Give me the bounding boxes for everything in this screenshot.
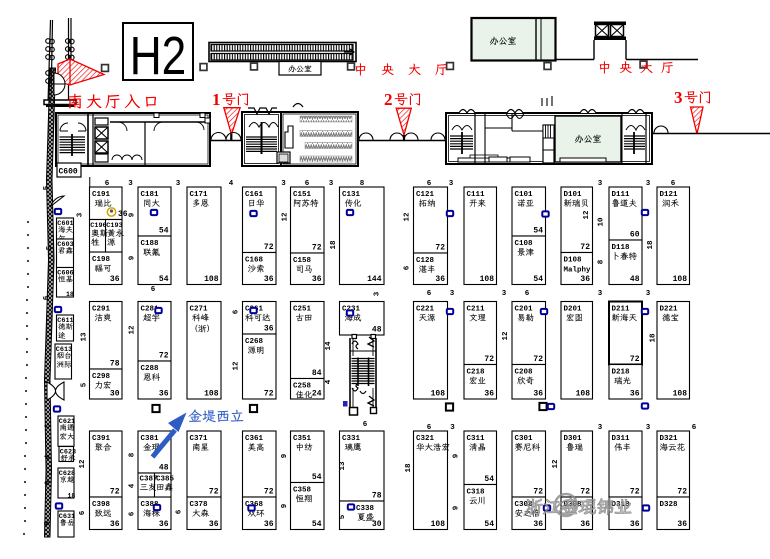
svg-text:科可达: 科可达 xyxy=(245,313,271,324)
svg-text:54: 54 xyxy=(159,227,169,236)
svg-text:84: 84 xyxy=(312,369,322,378)
svg-text:72: 72 xyxy=(630,355,640,364)
svg-text:14: 14 xyxy=(325,341,333,351)
svg-text:54: 54 xyxy=(484,475,494,484)
svg-text:36: 36 xyxy=(312,275,322,284)
svg-text:108: 108 xyxy=(431,520,446,529)
svg-text:C600: C600 xyxy=(59,168,78,177)
svg-text:宏图: 宏图 xyxy=(566,313,583,324)
svg-text:60: 60 xyxy=(630,231,640,240)
svg-text:源明: 源明 xyxy=(248,345,265,356)
svg-text:108: 108 xyxy=(431,390,446,399)
svg-text:72: 72 xyxy=(533,355,543,364)
svg-text:6: 6 xyxy=(233,309,241,314)
svg-text:3: 3 xyxy=(281,180,286,188)
svg-text:3: 3 xyxy=(329,180,334,188)
svg-text:72: 72 xyxy=(159,352,169,361)
svg-text:36: 36 xyxy=(159,520,169,529)
svg-text:9: 9 xyxy=(281,503,289,508)
svg-text:108: 108 xyxy=(673,275,688,284)
svg-text:日华: 日华 xyxy=(248,198,266,209)
svg-text:12: 12 xyxy=(552,459,560,469)
svg-text:78: 78 xyxy=(372,492,382,501)
svg-text:72: 72 xyxy=(264,488,274,497)
svg-text:36: 36 xyxy=(264,275,274,284)
svg-text:司马: 司马 xyxy=(296,264,313,275)
svg-text:号门: 号门 xyxy=(684,88,712,106)
svg-text:途: 途 xyxy=(58,331,66,341)
svg-text:德宝: 德宝 xyxy=(662,313,679,324)
svg-text:3: 3 xyxy=(176,180,181,188)
svg-text:1: 1 xyxy=(212,90,221,109)
svg-text:6: 6 xyxy=(45,480,53,485)
svg-text:72: 72 xyxy=(209,488,219,497)
svg-text:恒基: 恒基 xyxy=(58,275,73,285)
svg-text:恒翔: 恒翔 xyxy=(296,494,313,505)
svg-text:72: 72 xyxy=(677,488,687,497)
svg-text:18: 18 xyxy=(66,291,74,298)
svg-text:5: 5 xyxy=(339,514,347,519)
svg-text:佳化: 佳化 xyxy=(296,390,314,401)
svg-text:36: 36 xyxy=(110,520,120,529)
svg-text:南星: 南星 xyxy=(192,442,210,453)
svg-text:南大厅入口: 南大厅入口 xyxy=(67,90,162,112)
svg-text:72: 72 xyxy=(312,244,322,253)
svg-text:36: 36 xyxy=(484,390,494,399)
svg-text:源: 源 xyxy=(107,237,116,248)
svg-text:108: 108 xyxy=(576,390,591,399)
svg-text:3: 3 xyxy=(646,424,651,432)
svg-text:36: 36 xyxy=(677,520,687,529)
svg-text:文理: 文理 xyxy=(469,313,487,324)
svg-text:3: 3 xyxy=(450,424,455,432)
svg-text:6: 6 xyxy=(151,286,156,294)
svg-text:6: 6 xyxy=(176,509,184,514)
svg-text:金堤西立: 金堤西立 xyxy=(188,407,244,425)
svg-text:36: 36 xyxy=(580,275,590,284)
svg-text:多恩: 多恩 xyxy=(192,198,210,209)
svg-text:36: 36 xyxy=(630,520,640,529)
svg-text:36: 36 xyxy=(630,390,640,399)
svg-text:超宇: 超宇 xyxy=(143,313,161,324)
svg-text:48: 48 xyxy=(372,326,382,335)
svg-text:13: 13 xyxy=(339,461,347,471)
svg-text:沙索: 沙索 xyxy=(248,264,265,275)
svg-text:美高: 美高 xyxy=(248,442,265,453)
svg-text:8: 8 xyxy=(598,259,606,264)
svg-text:8: 8 xyxy=(360,180,365,188)
svg-text:云川: 云川 xyxy=(469,496,486,507)
svg-text:诺亚: 诺亚 xyxy=(517,198,535,209)
svg-text:12: 12 xyxy=(404,212,412,222)
svg-text:瑞光: 瑞光 xyxy=(614,376,631,387)
svg-text:鲁瑞: 鲁瑞 xyxy=(566,442,583,453)
svg-text:108: 108 xyxy=(673,390,688,399)
svg-text:福可: 福可 xyxy=(95,263,113,274)
svg-text:5: 5 xyxy=(46,245,54,250)
svg-text:天源: 天源 xyxy=(419,313,437,324)
svg-text:办公室: 办公室 xyxy=(574,133,601,145)
svg-text:卜春特: 卜春特 xyxy=(612,251,638,262)
svg-text:12: 12 xyxy=(129,325,137,335)
svg-text:4: 4 xyxy=(129,483,137,488)
svg-text:36: 36 xyxy=(533,520,543,529)
svg-text:54: 54 xyxy=(533,227,543,236)
svg-text:科峰: 科峰 xyxy=(192,313,210,324)
svg-text:新海天: 新海天 xyxy=(612,313,638,324)
svg-text:5: 5 xyxy=(81,382,89,387)
svg-text:24: 24 xyxy=(312,390,322,399)
svg-text:108: 108 xyxy=(204,275,219,284)
svg-text:D328: D328 xyxy=(660,501,679,509)
svg-text:6: 6 xyxy=(105,180,110,188)
svg-text:3: 3 xyxy=(598,180,603,188)
svg-text:12: 12 xyxy=(583,210,591,220)
svg-text:6: 6 xyxy=(44,521,52,526)
svg-text:6: 6 xyxy=(43,295,51,300)
svg-text:54: 54 xyxy=(312,520,322,529)
svg-text:易勒: 易勒 xyxy=(517,313,534,324)
svg-text:牲: 牲 xyxy=(91,237,100,248)
svg-text:9: 9 xyxy=(129,212,137,217)
svg-text:12: 12 xyxy=(79,459,87,469)
svg-text:144: 144 xyxy=(367,275,382,284)
svg-text:君鑫: 君鑫 xyxy=(58,246,73,256)
svg-text:赛尼科: 赛尼科 xyxy=(515,442,541,453)
svg-text:舒承: 舒承 xyxy=(61,454,76,464)
svg-text:联氟: 联氟 xyxy=(143,247,161,258)
svg-text:78: 78 xyxy=(110,360,120,369)
svg-text:同大: 同大 xyxy=(143,198,161,209)
svg-text:12: 12 xyxy=(282,212,290,222)
svg-text:36: 36 xyxy=(110,275,120,284)
svg-text:浙江金琨锦业: 浙江金琨锦业 xyxy=(523,495,633,519)
svg-text:108: 108 xyxy=(204,390,219,399)
svg-text:6: 6 xyxy=(427,290,432,298)
svg-text:Malphy: Malphy xyxy=(564,267,592,275)
svg-text:润禾: 润禾 xyxy=(662,198,680,209)
svg-text:9: 9 xyxy=(453,453,461,458)
svg-text:湛丰: 湛丰 xyxy=(419,264,436,275)
svg-text:3: 3 xyxy=(374,291,382,296)
svg-text:3: 3 xyxy=(449,180,454,188)
svg-text:宏大: 宏大 xyxy=(60,432,75,442)
svg-text:12: 12 xyxy=(233,361,241,371)
svg-text:6: 6 xyxy=(525,290,530,298)
svg-text:6: 6 xyxy=(692,424,697,432)
svg-text:景津: 景津 xyxy=(517,247,535,258)
svg-text:18: 18 xyxy=(650,333,658,343)
svg-text:6: 6 xyxy=(363,421,368,429)
svg-text:田鑫: 田鑫 xyxy=(156,482,174,493)
svg-text:中央大厅: 中央大厅 xyxy=(598,59,682,76)
svg-text:10: 10 xyxy=(598,217,606,227)
svg-text:聚合: 聚合 xyxy=(95,442,113,453)
svg-text:3: 3 xyxy=(128,180,133,188)
svg-text:6: 6 xyxy=(45,423,53,428)
svg-text:48: 48 xyxy=(159,464,169,473)
svg-text:宏业: 宏业 xyxy=(469,376,487,387)
svg-text:36: 36 xyxy=(580,520,590,529)
svg-text:6: 6 xyxy=(404,265,412,270)
svg-text:华大浩宏: 华大浩宏 xyxy=(416,442,450,453)
svg-text:12: 12 xyxy=(502,331,510,341)
svg-text:72: 72 xyxy=(580,243,590,252)
svg-text:瑞比: 瑞比 xyxy=(95,198,113,209)
svg-text:54: 54 xyxy=(533,275,543,284)
svg-text:9: 9 xyxy=(129,255,137,260)
svg-text:H2: H2 xyxy=(130,26,187,86)
svg-text:54: 54 xyxy=(312,473,322,482)
svg-text:办公室: 办公室 xyxy=(288,65,312,75)
svg-text:洲际: 洲际 xyxy=(57,360,72,370)
svg-text:36: 36 xyxy=(264,520,274,529)
svg-text:6: 6 xyxy=(427,180,432,188)
svg-text:办公室: 办公室 xyxy=(489,35,516,47)
svg-text:伟丰: 伟丰 xyxy=(614,442,631,453)
svg-text:3: 3 xyxy=(598,424,603,432)
svg-text:9: 9 xyxy=(453,505,461,510)
svg-text:36: 36 xyxy=(118,210,128,219)
svg-text:3: 3 xyxy=(598,290,603,298)
svg-text:48: 48 xyxy=(630,275,640,284)
svg-text:4: 4 xyxy=(229,180,234,188)
svg-text:3: 3 xyxy=(646,290,651,298)
svg-text:拓纳: 拓纳 xyxy=(419,198,436,209)
svg-text:6: 6 xyxy=(671,180,676,188)
svg-text:36: 36 xyxy=(264,325,274,334)
svg-text:9: 9 xyxy=(281,453,289,458)
svg-text:2: 2 xyxy=(384,90,393,109)
svg-text:54: 54 xyxy=(159,275,169,284)
svg-text:6: 6 xyxy=(129,511,137,516)
svg-text:大森: 大森 xyxy=(192,508,210,519)
svg-text:18: 18 xyxy=(330,240,338,250)
svg-text:30: 30 xyxy=(110,390,120,399)
svg-text:3: 3 xyxy=(674,88,683,107)
svg-text:6: 6 xyxy=(305,180,310,188)
svg-text:108: 108 xyxy=(480,275,495,284)
svg-text:（浙）: （浙） xyxy=(190,324,216,335)
svg-text:恩科: 恩科 xyxy=(143,372,161,383)
svg-text:清晶: 清晶 xyxy=(469,442,486,453)
svg-text:18: 18 xyxy=(68,493,76,500)
svg-text:3: 3 xyxy=(502,290,507,298)
svg-text:3: 3 xyxy=(77,212,85,217)
svg-text:36: 36 xyxy=(533,390,543,399)
svg-text:开来: 开来 xyxy=(469,198,487,209)
svg-text:13: 13 xyxy=(81,332,89,342)
svg-text:欣奇: 欣奇 xyxy=(517,376,535,387)
svg-text:鲁道夫: 鲁道夫 xyxy=(612,198,638,209)
svg-text:洁爽: 洁爽 xyxy=(95,313,113,324)
svg-text:海云花: 海云花 xyxy=(660,442,686,453)
svg-text:8: 8 xyxy=(129,452,137,457)
svg-text:京越: 京越 xyxy=(60,475,75,485)
svg-text:4: 4 xyxy=(325,379,333,384)
svg-text:6: 6 xyxy=(427,424,432,432)
svg-text:3: 3 xyxy=(450,290,455,298)
svg-text:号门: 号门 xyxy=(222,90,250,108)
svg-text:三友: 三友 xyxy=(140,482,158,493)
svg-text:72: 72 xyxy=(435,244,445,253)
svg-text:鲁岳: 鲁岳 xyxy=(60,518,75,528)
svg-text:4: 4 xyxy=(45,454,53,459)
svg-text:5: 5 xyxy=(43,185,51,190)
svg-text:36: 36 xyxy=(209,520,219,529)
svg-text:18: 18 xyxy=(647,240,655,250)
svg-text:54: 54 xyxy=(484,520,494,529)
svg-text:中纺: 中纺 xyxy=(296,442,314,453)
svg-text:致远: 致远 xyxy=(95,508,113,519)
svg-text:72: 72 xyxy=(264,390,274,399)
svg-text:30: 30 xyxy=(372,520,382,529)
svg-text:6: 6 xyxy=(79,510,87,515)
svg-text:阿苏特: 阿苏特 xyxy=(293,198,319,209)
svg-text:18: 18 xyxy=(405,463,413,473)
svg-text:中央大厅: 中央大厅 xyxy=(354,61,462,78)
svg-text:传化: 传化 xyxy=(345,198,363,209)
svg-text:72: 72 xyxy=(110,488,120,497)
svg-text:D108: D108 xyxy=(564,257,583,265)
svg-text:璃鹰: 璃鹰 xyxy=(345,442,362,453)
svg-text:36: 36 xyxy=(435,275,445,284)
svg-text:72: 72 xyxy=(264,243,274,252)
svg-text:号门: 号门 xyxy=(394,90,422,108)
svg-text:古田: 古田 xyxy=(296,313,313,324)
svg-text:72: 72 xyxy=(484,355,494,364)
svg-text:3: 3 xyxy=(646,180,651,188)
svg-text:新瑞贝: 新瑞贝 xyxy=(564,198,590,209)
svg-text:36: 36 xyxy=(159,390,169,399)
